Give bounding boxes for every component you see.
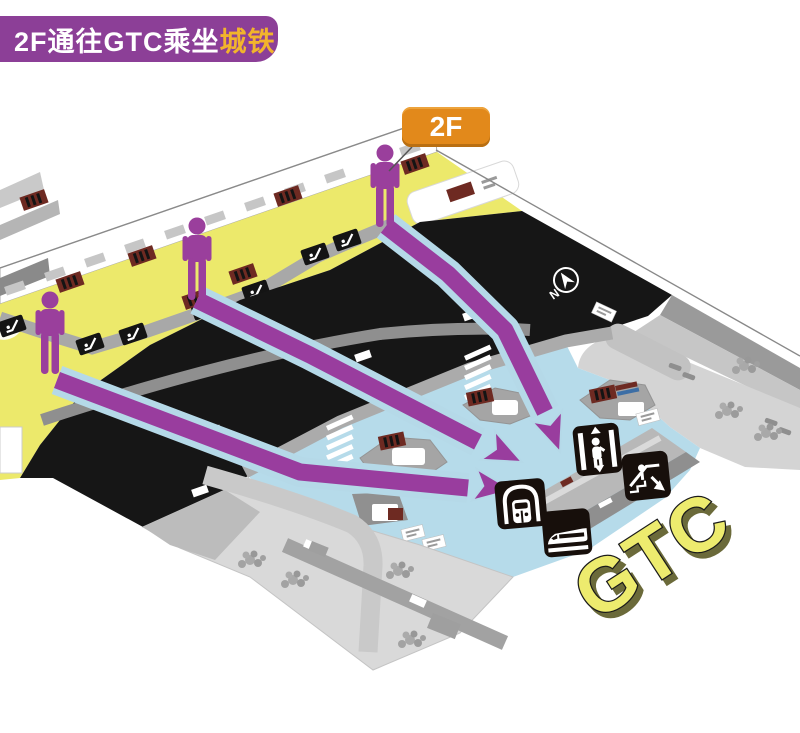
- title-text: 2F通往GTC乘坐: [14, 20, 220, 59]
- floor-badge-2f: 2F: [402, 107, 490, 147]
- escalator-icon: [621, 450, 672, 502]
- title-highlight-text: 城铁: [220, 20, 276, 59]
- title-banner: 2F通往GTC乘坐城铁: [0, 16, 278, 62]
- curb-notch: [0, 427, 22, 473]
- airport-map: N: [0, 0, 800, 733]
- floor-badge-label: 2F: [430, 111, 463, 143]
- metro-icon: [494, 478, 548, 530]
- elevator-icon: [572, 422, 623, 477]
- screenshot-root: N: [0, 0, 800, 733]
